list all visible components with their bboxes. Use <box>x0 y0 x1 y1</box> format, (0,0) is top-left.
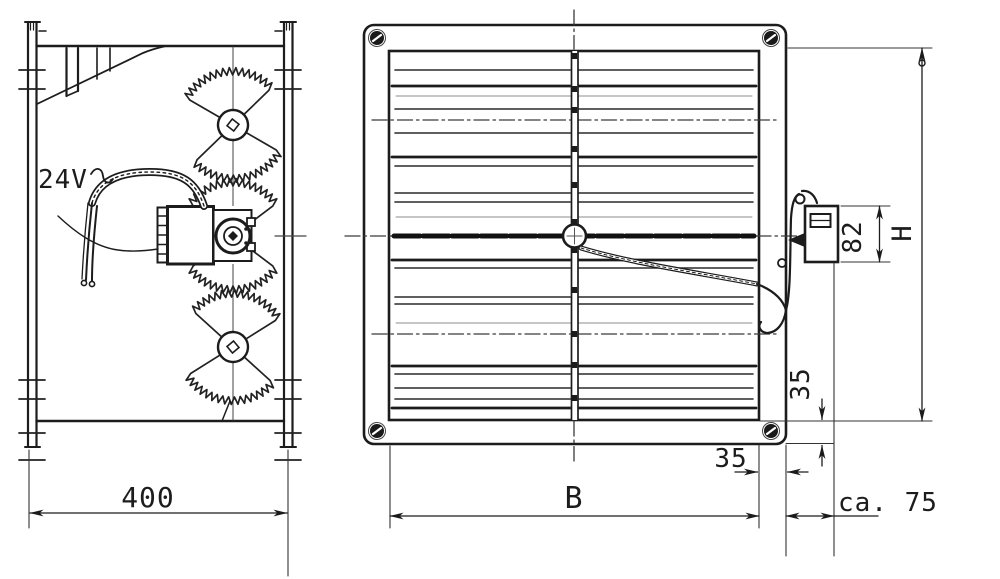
top-louver-blade-section <box>37 46 166 104</box>
rod-joint <box>572 287 578 293</box>
corner-screw-top-right <box>763 30 780 47</box>
label-24v: 24V <box>38 165 88 195</box>
dim-actuator-depth-ca75: ca. 75 <box>786 263 938 556</box>
rod-hub <box>563 225 586 248</box>
svg-text:35: 35 <box>714 444 747 474</box>
rod-joint <box>572 86 578 92</box>
svg-text:B: B <box>564 481 583 516</box>
corner-screw-bottom-right <box>763 423 780 440</box>
rod-joint <box>572 107 578 113</box>
corner-screw-bottom-left <box>369 423 386 440</box>
dim-actuator-height-82: 82 <box>838 206 890 262</box>
motor-front <box>804 205 840 263</box>
drawing-sheet: 24V 400 <box>0 0 1000 579</box>
rod-joint <box>572 53 578 59</box>
rod-joint <box>572 182 578 188</box>
side-view: 24V 400 <box>19 22 306 576</box>
cable-front <box>581 191 817 333</box>
svg-text:H: H <box>887 224 918 241</box>
technical-drawing-canvas: 24V 400 <box>0 0 1000 579</box>
front-view: H 82 35 35 B <box>345 10 938 556</box>
corner-screw-top-left <box>369 30 386 47</box>
side-frame-ticks <box>19 70 301 460</box>
svg-text:ca. 75: ca. 75 <box>838 488 938 518</box>
rod-joint <box>572 146 578 152</box>
svg-text:400: 400 <box>121 481 175 514</box>
dim-frame-width-400: 400 <box>29 450 288 576</box>
rod-joint <box>572 362 578 368</box>
svg-text:82: 82 <box>838 220 868 253</box>
gear-bottom-link <box>222 401 230 421</box>
dim-flange-bottom-35: 35 <box>786 367 834 466</box>
svg-text:35: 35 <box>786 367 816 400</box>
rod-joint <box>572 395 578 401</box>
motor-side <box>156 206 255 264</box>
rod-joint <box>572 331 578 337</box>
